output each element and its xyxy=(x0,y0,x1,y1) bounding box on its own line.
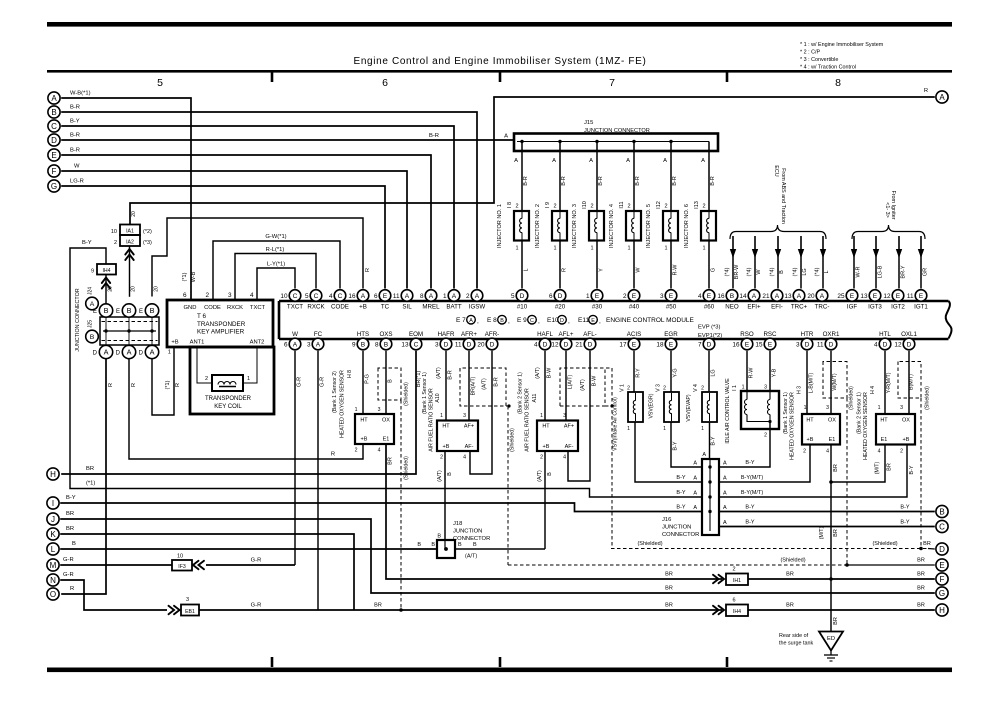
svg-text:D: D xyxy=(543,341,548,348)
svg-text:R: R xyxy=(108,383,114,387)
svg-text:I12: I12 xyxy=(656,201,662,209)
svg-text:IGF: IGF xyxy=(847,304,858,311)
svg-text:4: 4 xyxy=(563,455,566,461)
svg-text:LG: LG xyxy=(711,369,717,376)
svg-text:,: , xyxy=(568,318,570,325)
svg-text:4: 4 xyxy=(826,449,829,455)
svg-text:(Shielded): (Shielded) xyxy=(404,456,410,480)
svg-text:13: 13 xyxy=(784,293,792,300)
svg-text:A: A xyxy=(723,505,727,511)
svg-text:5: 5 xyxy=(305,293,309,300)
svg-text:D: D xyxy=(564,341,569,348)
svg-text:14: 14 xyxy=(739,293,747,300)
svg-text:(Bank 1 Sensor 1): (Bank 1 Sensor 1) xyxy=(783,392,789,434)
svg-text:4: 4 xyxy=(534,342,538,349)
svg-text:W: W xyxy=(756,269,762,275)
svg-text:GR: GR xyxy=(923,268,929,276)
svg-text:21: 21 xyxy=(575,342,583,349)
svg-text:W: W xyxy=(74,164,80,170)
svg-text:(*4): (*4) xyxy=(815,267,821,276)
svg-text:9: 9 xyxy=(91,269,94,275)
svg-text:D: D xyxy=(939,545,945,554)
svg-text:#20: #20 xyxy=(555,304,566,311)
svg-text:HTR: HTR xyxy=(801,331,814,338)
svg-text:CODE: CODE xyxy=(331,304,349,311)
svg-text:BATT: BATT xyxy=(446,304,462,311)
svg-text:G-R: G-R xyxy=(320,377,326,387)
svg-text:6: 6 xyxy=(284,342,288,349)
svg-text:the surge tank: the surge tank xyxy=(779,641,813,647)
svg-text:,: , xyxy=(508,318,510,325)
svg-text:J: J xyxy=(51,515,55,524)
svg-text:A: A xyxy=(775,293,780,300)
svg-text:A10: A10 xyxy=(435,393,441,402)
svg-text:2: 2 xyxy=(540,455,543,461)
svg-text:1: 1 xyxy=(355,407,358,413)
svg-text:E1: E1 xyxy=(383,437,390,443)
svg-text:1: 1 xyxy=(878,405,881,411)
svg-text:BR: BR xyxy=(665,603,673,609)
svg-text:L-B(M/T): L-B(M/T) xyxy=(809,373,815,394)
svg-text:2: 2 xyxy=(764,433,767,439)
svg-text:TRANSPONDER: TRANSPONDER xyxy=(205,396,252,402)
svg-text:A: A xyxy=(429,293,434,300)
svg-text:1: 1 xyxy=(702,246,705,252)
svg-text:BR: BR xyxy=(917,586,925,592)
svg-text:C: C xyxy=(51,122,57,131)
svg-text:E: E xyxy=(873,293,878,300)
svg-text:#40: #40 xyxy=(629,304,640,311)
svg-text:1: 1 xyxy=(515,246,518,252)
svg-text:2: 2 xyxy=(466,293,470,300)
svg-text:A: A xyxy=(452,293,457,300)
svg-text:L: L xyxy=(524,268,530,271)
svg-text:TRC+: TRC+ xyxy=(791,304,808,311)
svg-text:I13: I13 xyxy=(694,201,700,209)
svg-text:3: 3 xyxy=(228,292,232,299)
svg-text:BR-W: BR-W xyxy=(734,264,740,279)
svg-text:A: A xyxy=(797,293,802,300)
svg-text:EFI+: EFI+ xyxy=(747,304,761,311)
svg-text:B-Y(M/T): B-Y(M/T) xyxy=(741,490,763,496)
svg-text:E1: E1 xyxy=(881,437,888,443)
svg-text:BR: BR xyxy=(786,603,794,609)
svg-text:A: A xyxy=(723,491,727,497)
svg-text:(A/T): (A/T) xyxy=(465,554,477,560)
svg-text:TXCT: TXCT xyxy=(287,304,303,311)
svg-text:2: 2 xyxy=(627,386,630,392)
svg-text:TC: TC xyxy=(381,304,390,311)
svg-text:K: K xyxy=(50,530,56,539)
svg-text:TRC-: TRC- xyxy=(815,304,830,311)
svg-text:2: 2 xyxy=(701,386,704,392)
svg-text:I 1: I 1 xyxy=(732,385,738,391)
svg-text:W(M/T): W(M/T) xyxy=(832,373,838,391)
svg-text:B: B xyxy=(51,108,56,117)
svg-text:BR-Y: BR-Y xyxy=(901,265,907,278)
svg-text:A11: A11 xyxy=(532,393,538,402)
svg-text:21: 21 xyxy=(762,293,770,300)
svg-text:G: G xyxy=(711,268,717,272)
svg-text:2: 2 xyxy=(900,449,903,455)
svg-text:(A/T): (A/T) xyxy=(580,379,586,391)
svg-text:#10: #10 xyxy=(517,304,528,311)
svg-text:8: 8 xyxy=(375,342,379,349)
svg-text:2: 2 xyxy=(664,204,667,210)
svg-text:IGT1: IGT1 xyxy=(914,304,928,311)
svg-text:JUNCTION CONNECTOR: JUNCTION CONNECTOR xyxy=(75,288,81,351)
svg-text:(*1): (*1) xyxy=(182,272,188,281)
svg-text:BR: BR xyxy=(833,529,839,537)
svg-text:A: A xyxy=(127,348,132,357)
svg-text:A: A xyxy=(693,461,697,467)
svg-text:(*4): (*4) xyxy=(793,267,799,276)
svg-text:I 8: I 8 xyxy=(507,202,513,208)
svg-text:OXL1: OXL1 xyxy=(901,331,917,338)
svg-text:E: E xyxy=(383,293,388,300)
svg-text:1: 1 xyxy=(440,413,443,419)
svg-text:KEY AMPLIFIER: KEY AMPLIFIER xyxy=(197,329,245,336)
svg-text:FC: FC xyxy=(314,331,323,338)
svg-text:3: 3 xyxy=(463,413,466,419)
svg-text:+B: +B xyxy=(543,444,550,450)
svg-text:17: 17 xyxy=(619,342,627,349)
svg-text:NEO: NEO xyxy=(725,304,739,311)
svg-text:A: A xyxy=(514,158,518,164)
svg-text:10: 10 xyxy=(280,293,288,300)
svg-text:AF-: AF- xyxy=(465,444,474,450)
svg-text:A: A xyxy=(104,348,109,357)
svg-text:H 8: H 8 xyxy=(347,370,353,378)
svg-text:A: A xyxy=(820,293,825,300)
svg-text:IA2: IA2 xyxy=(126,240,134,246)
svg-text:D: D xyxy=(520,293,525,300)
svg-text:ANT1: ANT1 xyxy=(190,340,205,346)
svg-text:J18: J18 xyxy=(453,521,462,527)
svg-text:B-Y: B-Y xyxy=(676,475,686,481)
svg-text:D: D xyxy=(139,351,144,357)
svg-text:(A/T): (A/T) xyxy=(437,470,443,482)
svg-text:G-R: G-R xyxy=(63,572,74,578)
svg-text:C: C xyxy=(414,341,419,348)
svg-text:Y-G: Y-G xyxy=(673,368,679,377)
svg-text:BR: BR xyxy=(66,511,74,517)
svg-text:AF+: AF+ xyxy=(464,424,474,430)
svg-text:D: D xyxy=(467,341,472,348)
svg-text:E: E xyxy=(745,341,750,348)
svg-text:(*1): (*1) xyxy=(86,481,95,487)
svg-text:EOM: EOM xyxy=(409,331,423,338)
svg-text:B-Y: B-Y xyxy=(676,490,686,496)
svg-text:+B: +B xyxy=(171,340,178,346)
svg-text:R: R xyxy=(924,88,928,94)
svg-text:J25: J25 xyxy=(88,320,94,328)
svg-text:B: B xyxy=(458,542,462,548)
svg-text:OX: OX xyxy=(828,418,836,424)
svg-text:B-R: B-R xyxy=(70,133,80,139)
svg-text:A: A xyxy=(293,341,298,348)
svg-text:D: D xyxy=(883,341,888,348)
svg-text:D: D xyxy=(805,341,810,348)
svg-text:HEATED OXYGEN SENSOR: HEATED OXYGEN SENSOR xyxy=(790,392,796,460)
svg-text:1: 1 xyxy=(540,413,543,419)
svg-text:V 1: V 1 xyxy=(620,384,626,392)
svg-text:Y-R(M/T): Y-R(M/T) xyxy=(886,372,892,393)
svg-text:R: R xyxy=(365,268,371,272)
svg-text:D: D xyxy=(444,341,449,348)
svg-text:2: 2 xyxy=(627,204,630,210)
svg-text:(*4): (*4) xyxy=(770,267,776,276)
svg-text:3: 3 xyxy=(378,407,381,413)
svg-text:R: R xyxy=(70,586,74,592)
svg-text:W-B(*1): W-B(*1) xyxy=(70,91,91,97)
svg-text:M: M xyxy=(50,561,57,570)
svg-text:2: 2 xyxy=(355,448,358,454)
svg-text:1: 1 xyxy=(168,350,171,356)
svg-text:D: D xyxy=(829,341,834,348)
svg-text:G-R: G-R xyxy=(251,603,262,609)
svg-text:HT: HT xyxy=(542,424,550,430)
svg-text:B: B xyxy=(500,318,504,324)
svg-text:+B: +B xyxy=(903,437,910,443)
svg-text:6: 6 xyxy=(549,293,553,300)
svg-text:(M/T): (M/T) xyxy=(875,462,881,475)
svg-text:HTS: HTS xyxy=(357,331,369,338)
svg-text:(Shielded): (Shielded) xyxy=(925,386,931,410)
svg-text:E: E xyxy=(669,293,674,300)
svg-text:13: 13 xyxy=(860,293,868,300)
svg-text:N: N xyxy=(50,576,56,585)
svg-text:D: D xyxy=(558,293,563,300)
svg-text:TRANSPONDER: TRANSPONDER xyxy=(197,321,246,328)
svg-text:BR: BR xyxy=(917,572,925,578)
svg-text:HT: HT xyxy=(360,418,368,424)
svg-text:IA1: IA1 xyxy=(126,229,134,235)
svg-text:ECU: ECU xyxy=(773,165,779,176)
svg-text:VSV(EVAP): VSV(EVAP) xyxy=(686,394,692,422)
svg-text:P-G: P-G xyxy=(365,374,371,384)
svg-text:A: A xyxy=(939,93,945,102)
svg-text:H: H xyxy=(50,470,56,479)
svg-text:,: , xyxy=(477,318,479,325)
svg-text:1: 1 xyxy=(586,293,590,300)
svg-text:B-R: B-R xyxy=(523,176,529,186)
svg-text:INJECTOR NO. 4: INJECTOR NO. 4 xyxy=(609,204,615,248)
svg-text:HT: HT xyxy=(880,418,888,424)
svg-text:IH1: IH1 xyxy=(733,578,741,584)
svg-text:12: 12 xyxy=(894,342,902,349)
svg-text:E: E xyxy=(632,341,637,348)
svg-text:JUNCTION: JUNCTION xyxy=(453,529,482,535)
svg-text:BR: BR xyxy=(665,586,673,592)
svg-text:2: 2 xyxy=(590,204,593,210)
svg-text:B: B xyxy=(437,534,441,540)
svg-text:B-Y: B-Y xyxy=(745,520,755,526)
svg-text:HT: HT xyxy=(806,418,814,424)
svg-text:HT: HT xyxy=(442,424,450,430)
svg-text:4: 4 xyxy=(878,449,881,455)
svg-text:IH4: IH4 xyxy=(102,268,110,274)
svg-text:#50: #50 xyxy=(666,304,677,311)
svg-text:1: 1 xyxy=(443,293,447,300)
svg-text:(Bank 2 Sensor 1): (Bank 2 Sensor 1) xyxy=(857,392,863,434)
svg-text:B: B xyxy=(779,270,785,274)
svg-text:B-Y: B-Y xyxy=(66,495,76,501)
svg-text:F: F xyxy=(940,575,945,584)
svg-text:ACIS: ACIS xyxy=(627,331,641,338)
svg-text:15: 15 xyxy=(755,342,763,349)
svg-text:E1: E1 xyxy=(829,437,836,443)
svg-text:B-W: B-W xyxy=(547,367,553,379)
svg-text:B: B xyxy=(473,542,477,548)
svg-text:C: C xyxy=(314,293,319,300)
svg-text:B-W: B-W xyxy=(592,375,598,387)
svg-text:3: 3 xyxy=(796,342,800,349)
svg-text:BR: BR xyxy=(923,541,931,547)
svg-text:AFR-: AFR- xyxy=(485,331,499,338)
svg-text:9: 9 xyxy=(352,342,356,349)
svg-text:B-Y: B-Y xyxy=(900,520,910,526)
svg-text:+B: +B xyxy=(361,437,368,443)
svg-text:A: A xyxy=(723,476,727,482)
svg-text:3: 3 xyxy=(764,385,767,391)
svg-text:G-W(*1): G-W(*1) xyxy=(265,234,286,240)
svg-text:2: 2 xyxy=(732,567,735,573)
svg-text:LG: LG xyxy=(802,268,808,275)
svg-text:(Shielded): (Shielded) xyxy=(404,382,410,406)
svg-text:6: 6 xyxy=(732,598,735,604)
svg-text:Y: Y xyxy=(599,268,605,272)
svg-text:A: A xyxy=(504,134,508,140)
svg-text:RXCK: RXCK xyxy=(227,305,243,311)
svg-text:D: D xyxy=(588,341,593,348)
svg-text:CODE: CODE xyxy=(204,305,221,311)
svg-text:2: 2 xyxy=(515,204,518,210)
svg-text:A: A xyxy=(752,293,757,300)
svg-text:A: A xyxy=(693,491,697,497)
svg-text:A: A xyxy=(693,476,697,482)
svg-text:H 4: H 4 xyxy=(870,386,876,394)
svg-text:V 4: V 4 xyxy=(693,384,699,392)
svg-text:D: D xyxy=(490,341,495,348)
svg-text:2: 2 xyxy=(553,204,556,210)
svg-text:OXR1: OXR1 xyxy=(823,331,840,338)
svg-text:B(M/T): B(M/T) xyxy=(909,374,915,390)
svg-text:ENGINE CONTROL MODULE: ENGINE CONTROL MODULE xyxy=(606,317,695,324)
svg-text:AFR+: AFR+ xyxy=(461,331,477,338)
svg-text:I11: I11 xyxy=(619,201,625,208)
svg-text:AFL+: AFL+ xyxy=(559,331,574,338)
svg-text:A: A xyxy=(552,158,556,164)
svg-text:J16: J16 xyxy=(662,517,671,523)
svg-text:E: E xyxy=(768,341,773,348)
svg-text:RSO: RSO xyxy=(740,331,754,338)
svg-text:B-R: B-R xyxy=(70,105,80,111)
svg-text:B: B xyxy=(431,542,435,548)
svg-text:B: B xyxy=(447,472,453,476)
svg-text:BR(A/T): BR(A/T) xyxy=(471,376,477,395)
svg-text:B: B xyxy=(361,341,366,348)
svg-text:B-R: B-R xyxy=(710,176,716,186)
svg-text:EGR: EGR xyxy=(664,331,678,338)
svg-text:D: D xyxy=(93,351,98,357)
svg-text:H 3: H 3 xyxy=(797,386,803,394)
svg-text:AIR FUEL RATIO SENSOR: AIR FUEL RATIO SENSOR xyxy=(429,388,435,452)
svg-text:18: 18 xyxy=(656,342,664,349)
svg-text:3: 3 xyxy=(660,293,664,300)
svg-text:E: E xyxy=(595,293,600,300)
svg-text:INJECTOR NO. 3: INJECTOR NO. 3 xyxy=(572,204,578,248)
svg-text:LG-B: LG-B xyxy=(878,265,884,278)
svg-text:R: R xyxy=(131,383,137,387)
svg-text:B: B xyxy=(730,293,735,300)
svg-text:B: B xyxy=(104,306,109,315)
svg-text:B-Y: B-Y xyxy=(745,505,755,511)
svg-text:RXCK: RXCK xyxy=(307,304,325,311)
svg-text:HAFL: HAFL xyxy=(537,331,553,338)
svg-text:J24: J24 xyxy=(88,287,94,295)
svg-text:KEY COIL: KEY COIL xyxy=(214,404,242,410)
svg-text:4: 4 xyxy=(698,293,702,300)
svg-text:HAFR: HAFR xyxy=(438,331,455,338)
svg-text:16: 16 xyxy=(717,293,725,300)
svg-text:R-L(*1): R-L(*1) xyxy=(266,247,285,253)
svg-text:13: 13 xyxy=(401,342,409,349)
svg-text:OX: OX xyxy=(382,418,390,424)
svg-text:,: , xyxy=(599,318,601,325)
svg-text:* 4 : w/ Traction Control: * 4 : w/ Traction Control xyxy=(800,65,856,71)
svg-text:C: C xyxy=(530,318,534,324)
svg-text:G: G xyxy=(51,182,57,191)
svg-text:12: 12 xyxy=(883,293,891,300)
svg-text:BR: BR xyxy=(887,463,893,471)
svg-text:(Shielded): (Shielded) xyxy=(637,541,662,547)
svg-text:A: A xyxy=(723,461,727,467)
svg-text:B: B xyxy=(72,541,76,547)
svg-text:TXCT: TXCT xyxy=(250,305,266,311)
svg-text:16: 16 xyxy=(348,293,356,300)
svg-text:(A/T): (A/T) xyxy=(436,367,442,379)
svg-text:8: 8 xyxy=(835,77,841,89)
svg-text:E: E xyxy=(707,293,712,300)
svg-text:L-Y(*1): L-Y(*1) xyxy=(267,262,285,268)
svg-text:AF-: AF- xyxy=(565,444,574,450)
svg-text:INJECTOR NO. 6: INJECTOR NO. 6 xyxy=(684,204,690,248)
svg-text:7: 7 xyxy=(609,77,615,89)
svg-text:12: 12 xyxy=(551,342,559,349)
svg-text:A: A xyxy=(693,505,697,511)
svg-text:6: 6 xyxy=(183,292,187,299)
svg-text:B-Y: B-Y xyxy=(711,436,717,446)
svg-text:BR: BR xyxy=(665,572,673,578)
svg-text:20: 20 xyxy=(807,293,815,300)
svg-text:INJECTOR NO. 5: INJECTOR NO. 5 xyxy=(646,204,652,248)
svg-text:J15: J15 xyxy=(584,120,593,126)
svg-text:B-Y: B-Y xyxy=(82,240,92,246)
svg-text:5: 5 xyxy=(157,77,163,89)
svg-text:2: 2 xyxy=(663,386,666,392)
svg-text:O: O xyxy=(50,590,56,599)
svg-text:20: 20 xyxy=(154,286,160,292)
svg-text:E: E xyxy=(669,341,674,348)
svg-text:F: F xyxy=(52,167,57,176)
svg-text:IH4: IH4 xyxy=(733,609,741,615)
svg-text:I 9: I 9 xyxy=(545,202,551,208)
svg-text:(*4): (*4) xyxy=(725,267,731,276)
svg-text:G-R: G-R xyxy=(63,557,74,563)
svg-text:4: 4 xyxy=(874,342,878,349)
svg-text:IF3: IF3 xyxy=(178,564,186,570)
